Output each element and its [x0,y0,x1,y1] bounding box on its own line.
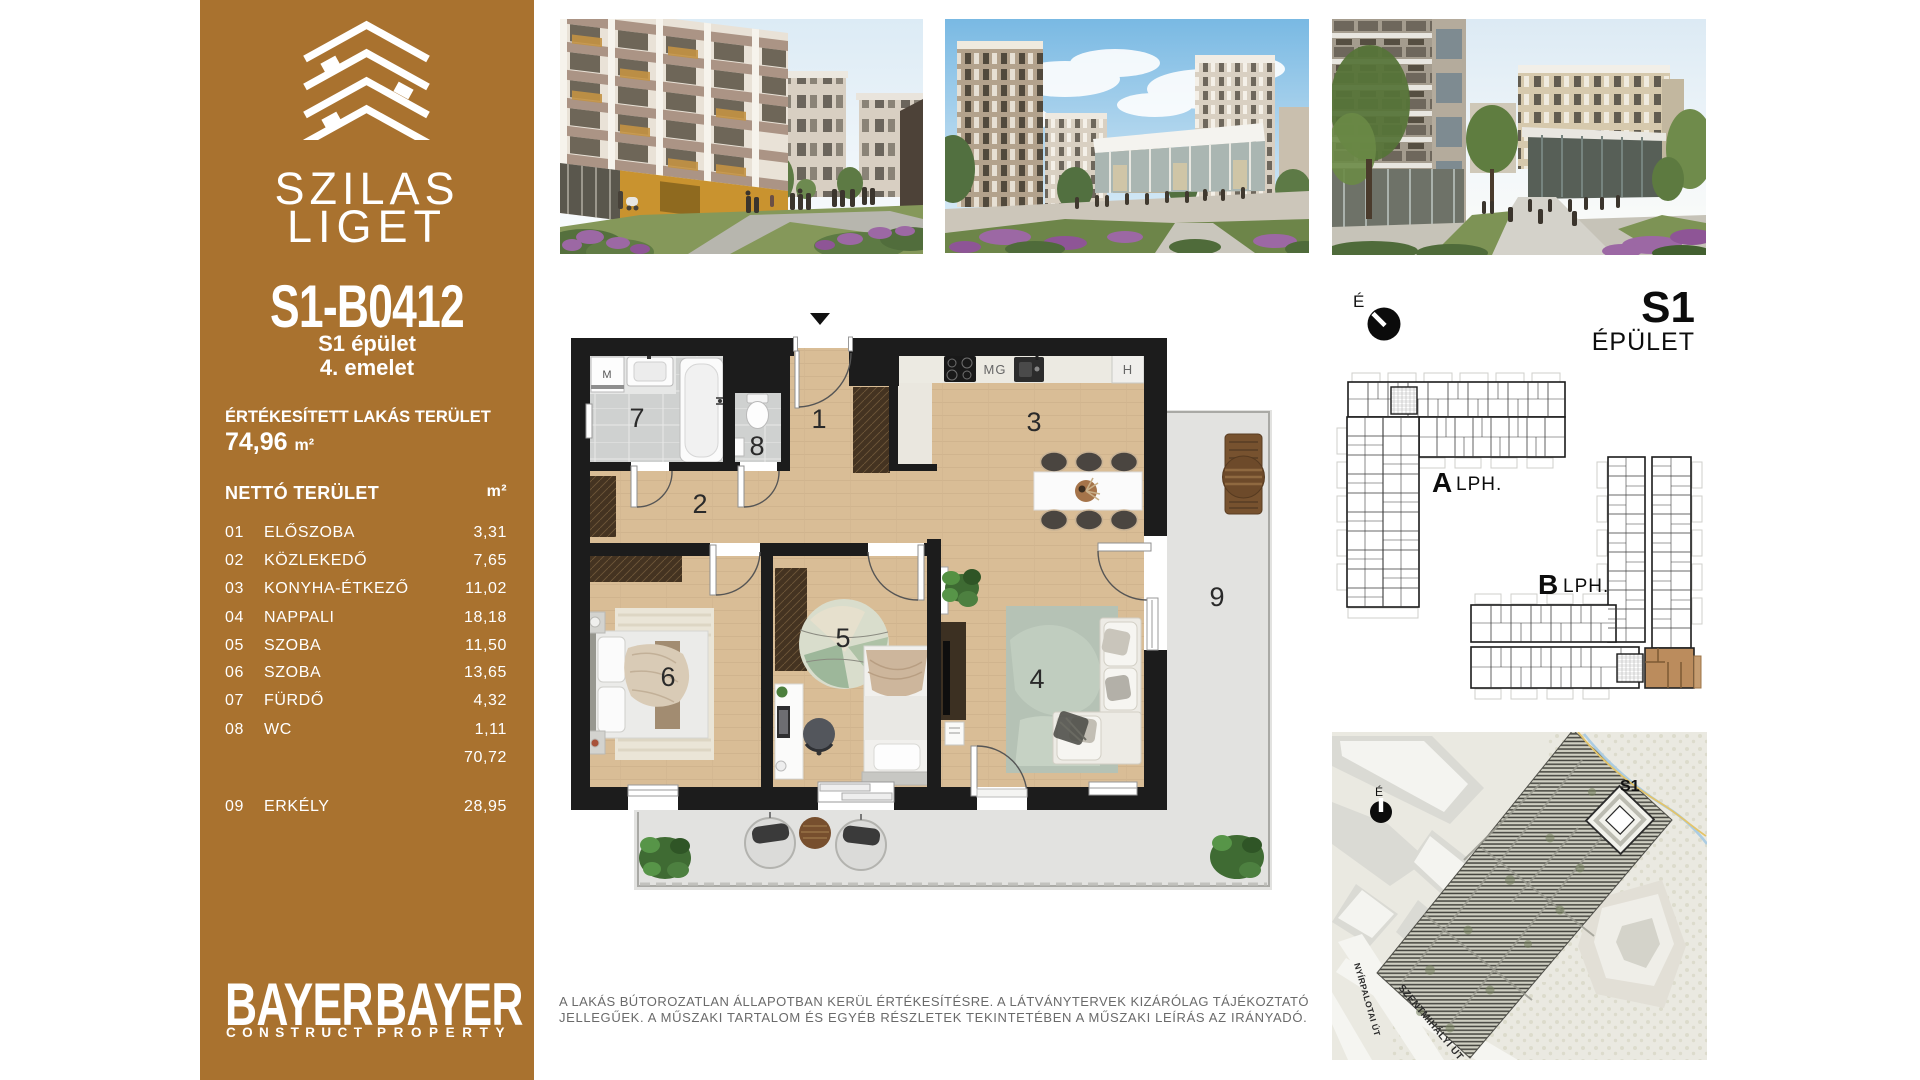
svg-text:S1: S1 [1620,778,1640,795]
svg-text:6: 6 [660,662,675,692]
svg-text:1: 1 [811,404,826,434]
svg-text:MG: MG [984,362,1007,377]
svg-text:3: 3 [1026,407,1041,437]
svg-text:M: M [602,369,611,381]
svg-text:9: 9 [1209,582,1224,612]
svg-text:LPH.: LPH. [1456,474,1502,495]
svg-text:4: 4 [1029,664,1044,694]
svg-text:7: 7 [629,403,644,433]
svg-text:2: 2 [692,489,707,519]
svg-text:LPH.: LPH. [1563,576,1609,597]
svg-text:8: 8 [749,431,764,461]
svg-text:B: B [1538,569,1558,600]
svg-text:A: A [1432,467,1452,498]
svg-text:H: H [1123,362,1133,377]
svg-text:É: É [1375,784,1383,799]
svg-text:5: 5 [835,623,850,653]
